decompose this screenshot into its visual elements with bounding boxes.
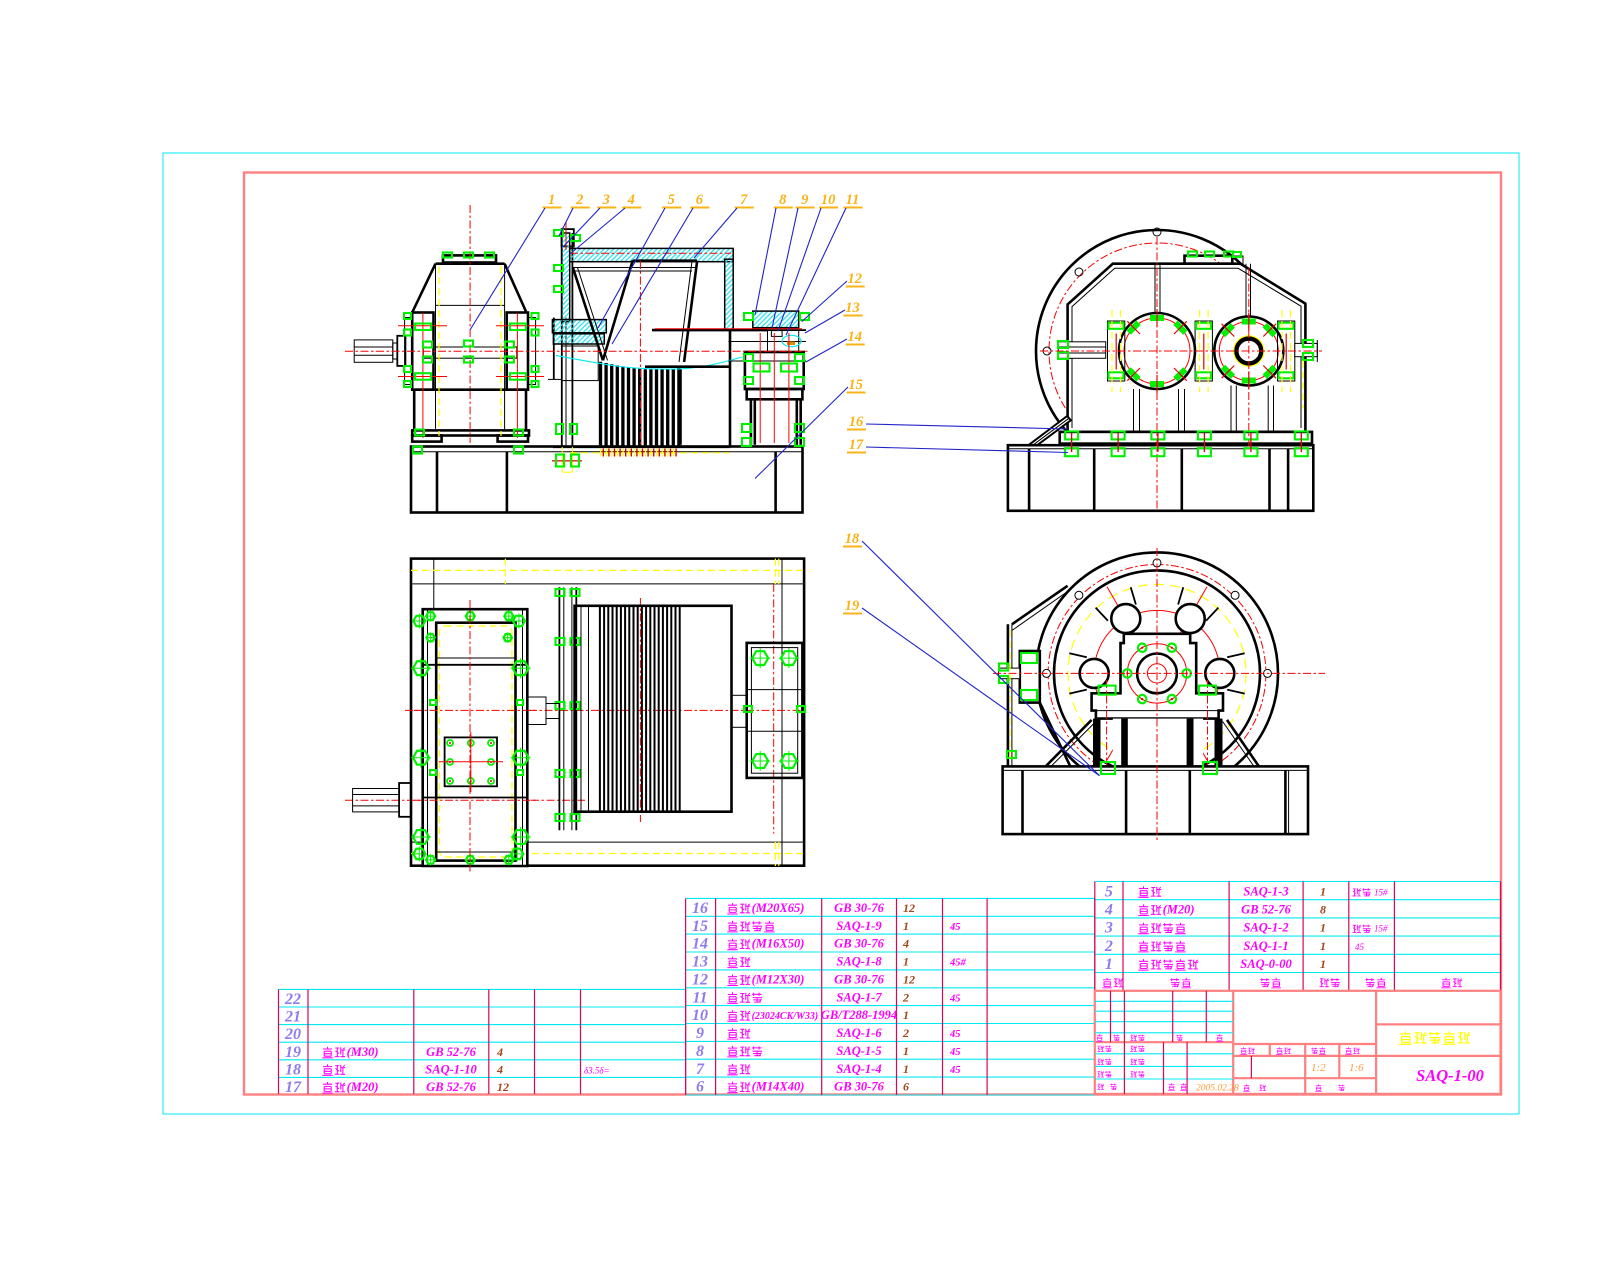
svg-text:SAQ-1-4: SAQ-1-4 [836, 1062, 881, 1076]
svg-text:13: 13 [692, 954, 708, 971]
svg-text:9: 9 [696, 1025, 704, 1042]
svg-text:9: 9 [801, 192, 808, 208]
svg-text:45: 45 [949, 1047, 961, 1058]
svg-text:13: 13 [845, 300, 860, 316]
svg-text:1: 1 [903, 1044, 909, 1058]
svg-text:SAQ-1-1: SAQ-1-1 [1243, 939, 1288, 953]
svg-text:7: 7 [696, 1061, 705, 1078]
svg-text:45: 45 [949, 1029, 961, 1040]
svg-text:45: 45 [1355, 942, 1365, 952]
svg-text:(M20): (M20) [347, 1080, 379, 1094]
svg-text:20: 20 [284, 1026, 301, 1043]
svg-text:5: 5 [1105, 883, 1113, 900]
svg-text:16: 16 [692, 900, 708, 917]
svg-text:4: 4 [627, 192, 635, 208]
svg-text:SAQ-1-6: SAQ-1-6 [836, 1026, 882, 1040]
svg-text:δ3.5δ=: δ3.5δ= [584, 1065, 610, 1075]
svg-text:6: 6 [696, 1079, 704, 1096]
svg-text:22: 22 [284, 991, 301, 1008]
svg-text:GB 52-76: GB 52-76 [426, 1080, 476, 1094]
svg-text:SAQ-1-3: SAQ-1-3 [1243, 884, 1288, 898]
svg-text:GB 30-76: GB 30-76 [834, 937, 884, 951]
svg-text:(M20X65): (M20X65) [752, 901, 805, 915]
svg-text:1: 1 [1320, 939, 1326, 953]
svg-text:2: 2 [575, 192, 583, 208]
svg-text:11: 11 [846, 192, 860, 208]
svg-text:6: 6 [903, 1080, 909, 1094]
svg-text:4: 4 [902, 937, 909, 951]
svg-text:SAQ-0-00: SAQ-0-00 [1240, 957, 1292, 971]
svg-text:8: 8 [696, 1043, 704, 1060]
svg-text:12: 12 [903, 901, 915, 915]
svg-text:GB 52-76: GB 52-76 [426, 1045, 476, 1059]
svg-text:(M16X50): (M16X50) [752, 937, 805, 951]
svg-text:SAQ-1-8: SAQ-1-8 [836, 955, 882, 969]
svg-text:(M14X40): (M14X40) [752, 1080, 805, 1094]
svg-text:(M30): (M30) [347, 1045, 379, 1059]
svg-text:19: 19 [845, 598, 860, 614]
svg-text:11: 11 [692, 989, 707, 1006]
svg-text:45: 45 [949, 1065, 961, 1076]
svg-text:8: 8 [1320, 903, 1326, 917]
svg-text:15: 15 [692, 918, 708, 935]
svg-text:1: 1 [1105, 956, 1113, 973]
svg-text:4: 4 [1104, 902, 1113, 919]
svg-text:3: 3 [1104, 920, 1113, 937]
svg-text:SAQ-1-2: SAQ-1-2 [1243, 921, 1288, 935]
svg-text:SAQ-1-5: SAQ-1-5 [836, 1044, 881, 1058]
svg-text:GB 52-76: GB 52-76 [1241, 903, 1291, 917]
svg-text:7: 7 [740, 192, 748, 208]
svg-text:GB 30-76: GB 30-76 [834, 972, 884, 986]
svg-text:1:2: 1:2 [1311, 1062, 1326, 1074]
svg-text:1:6: 1:6 [1349, 1062, 1364, 1074]
svg-text:(23024CK/W33): (23024CK/W33) [752, 1011, 819, 1022]
svg-text:12: 12 [497, 1080, 509, 1094]
svg-text:GB/T288-1994: GB/T288-1994 [821, 1008, 897, 1022]
svg-text:2: 2 [902, 1026, 909, 1040]
svg-text:GB 30-76: GB 30-76 [834, 1080, 884, 1094]
svg-text:45: 45 [949, 993, 961, 1004]
svg-text:45: 45 [949, 922, 961, 933]
svg-text:15: 15 [848, 377, 863, 393]
svg-text:18: 18 [845, 531, 860, 547]
svg-text:SAQ-1-00: SAQ-1-00 [1416, 1066, 1484, 1085]
svg-text:1: 1 [903, 955, 909, 969]
svg-text:1: 1 [548, 192, 555, 208]
svg-text:4: 4 [496, 1045, 503, 1059]
svg-text:2005.02.28: 2005.02.28 [1196, 1084, 1239, 1094]
svg-text:18: 18 [285, 1061, 301, 1078]
svg-text:10: 10 [692, 1007, 708, 1024]
svg-text:10: 10 [821, 192, 836, 208]
svg-text:2: 2 [902, 990, 909, 1004]
svg-text:(M20): (M20) [1163, 903, 1195, 917]
svg-text:19: 19 [285, 1044, 301, 1061]
svg-text:12: 12 [692, 971, 708, 988]
svg-text:SAQ-1-10: SAQ-1-10 [425, 1062, 477, 1076]
svg-text:1: 1 [903, 919, 909, 933]
svg-text:(M12X30): (M12X30) [752, 972, 805, 986]
svg-text:15#: 15# [1374, 887, 1388, 897]
svg-text:21: 21 [284, 1009, 301, 1026]
svg-text:17: 17 [285, 1079, 302, 1096]
svg-text:15#: 15# [1374, 924, 1388, 934]
svg-text:3: 3 [602, 192, 610, 208]
svg-text:14: 14 [847, 329, 862, 345]
svg-text:5: 5 [668, 192, 675, 208]
svg-text:17: 17 [849, 437, 864, 453]
svg-text:SAQ-1-7: SAQ-1-7 [836, 990, 882, 1004]
svg-text:45#: 45# [949, 958, 967, 969]
svg-text:1: 1 [1320, 957, 1326, 971]
svg-text:SAQ-1-9: SAQ-1-9 [836, 919, 882, 933]
svg-text:1: 1 [1320, 884, 1326, 898]
svg-text:8: 8 [779, 192, 787, 208]
svg-text:16: 16 [849, 414, 864, 430]
svg-text:6: 6 [696, 192, 704, 208]
svg-text:1: 1 [1320, 921, 1326, 935]
svg-text:4: 4 [496, 1062, 503, 1076]
svg-text:12: 12 [903, 972, 915, 986]
svg-text:12: 12 [847, 271, 862, 287]
svg-text:1: 1 [903, 1008, 909, 1022]
svg-text:2: 2 [1104, 938, 1113, 955]
svg-text:GB 30-76: GB 30-76 [834, 901, 884, 915]
svg-text:14: 14 [692, 936, 708, 953]
svg-text:1: 1 [903, 1062, 909, 1076]
